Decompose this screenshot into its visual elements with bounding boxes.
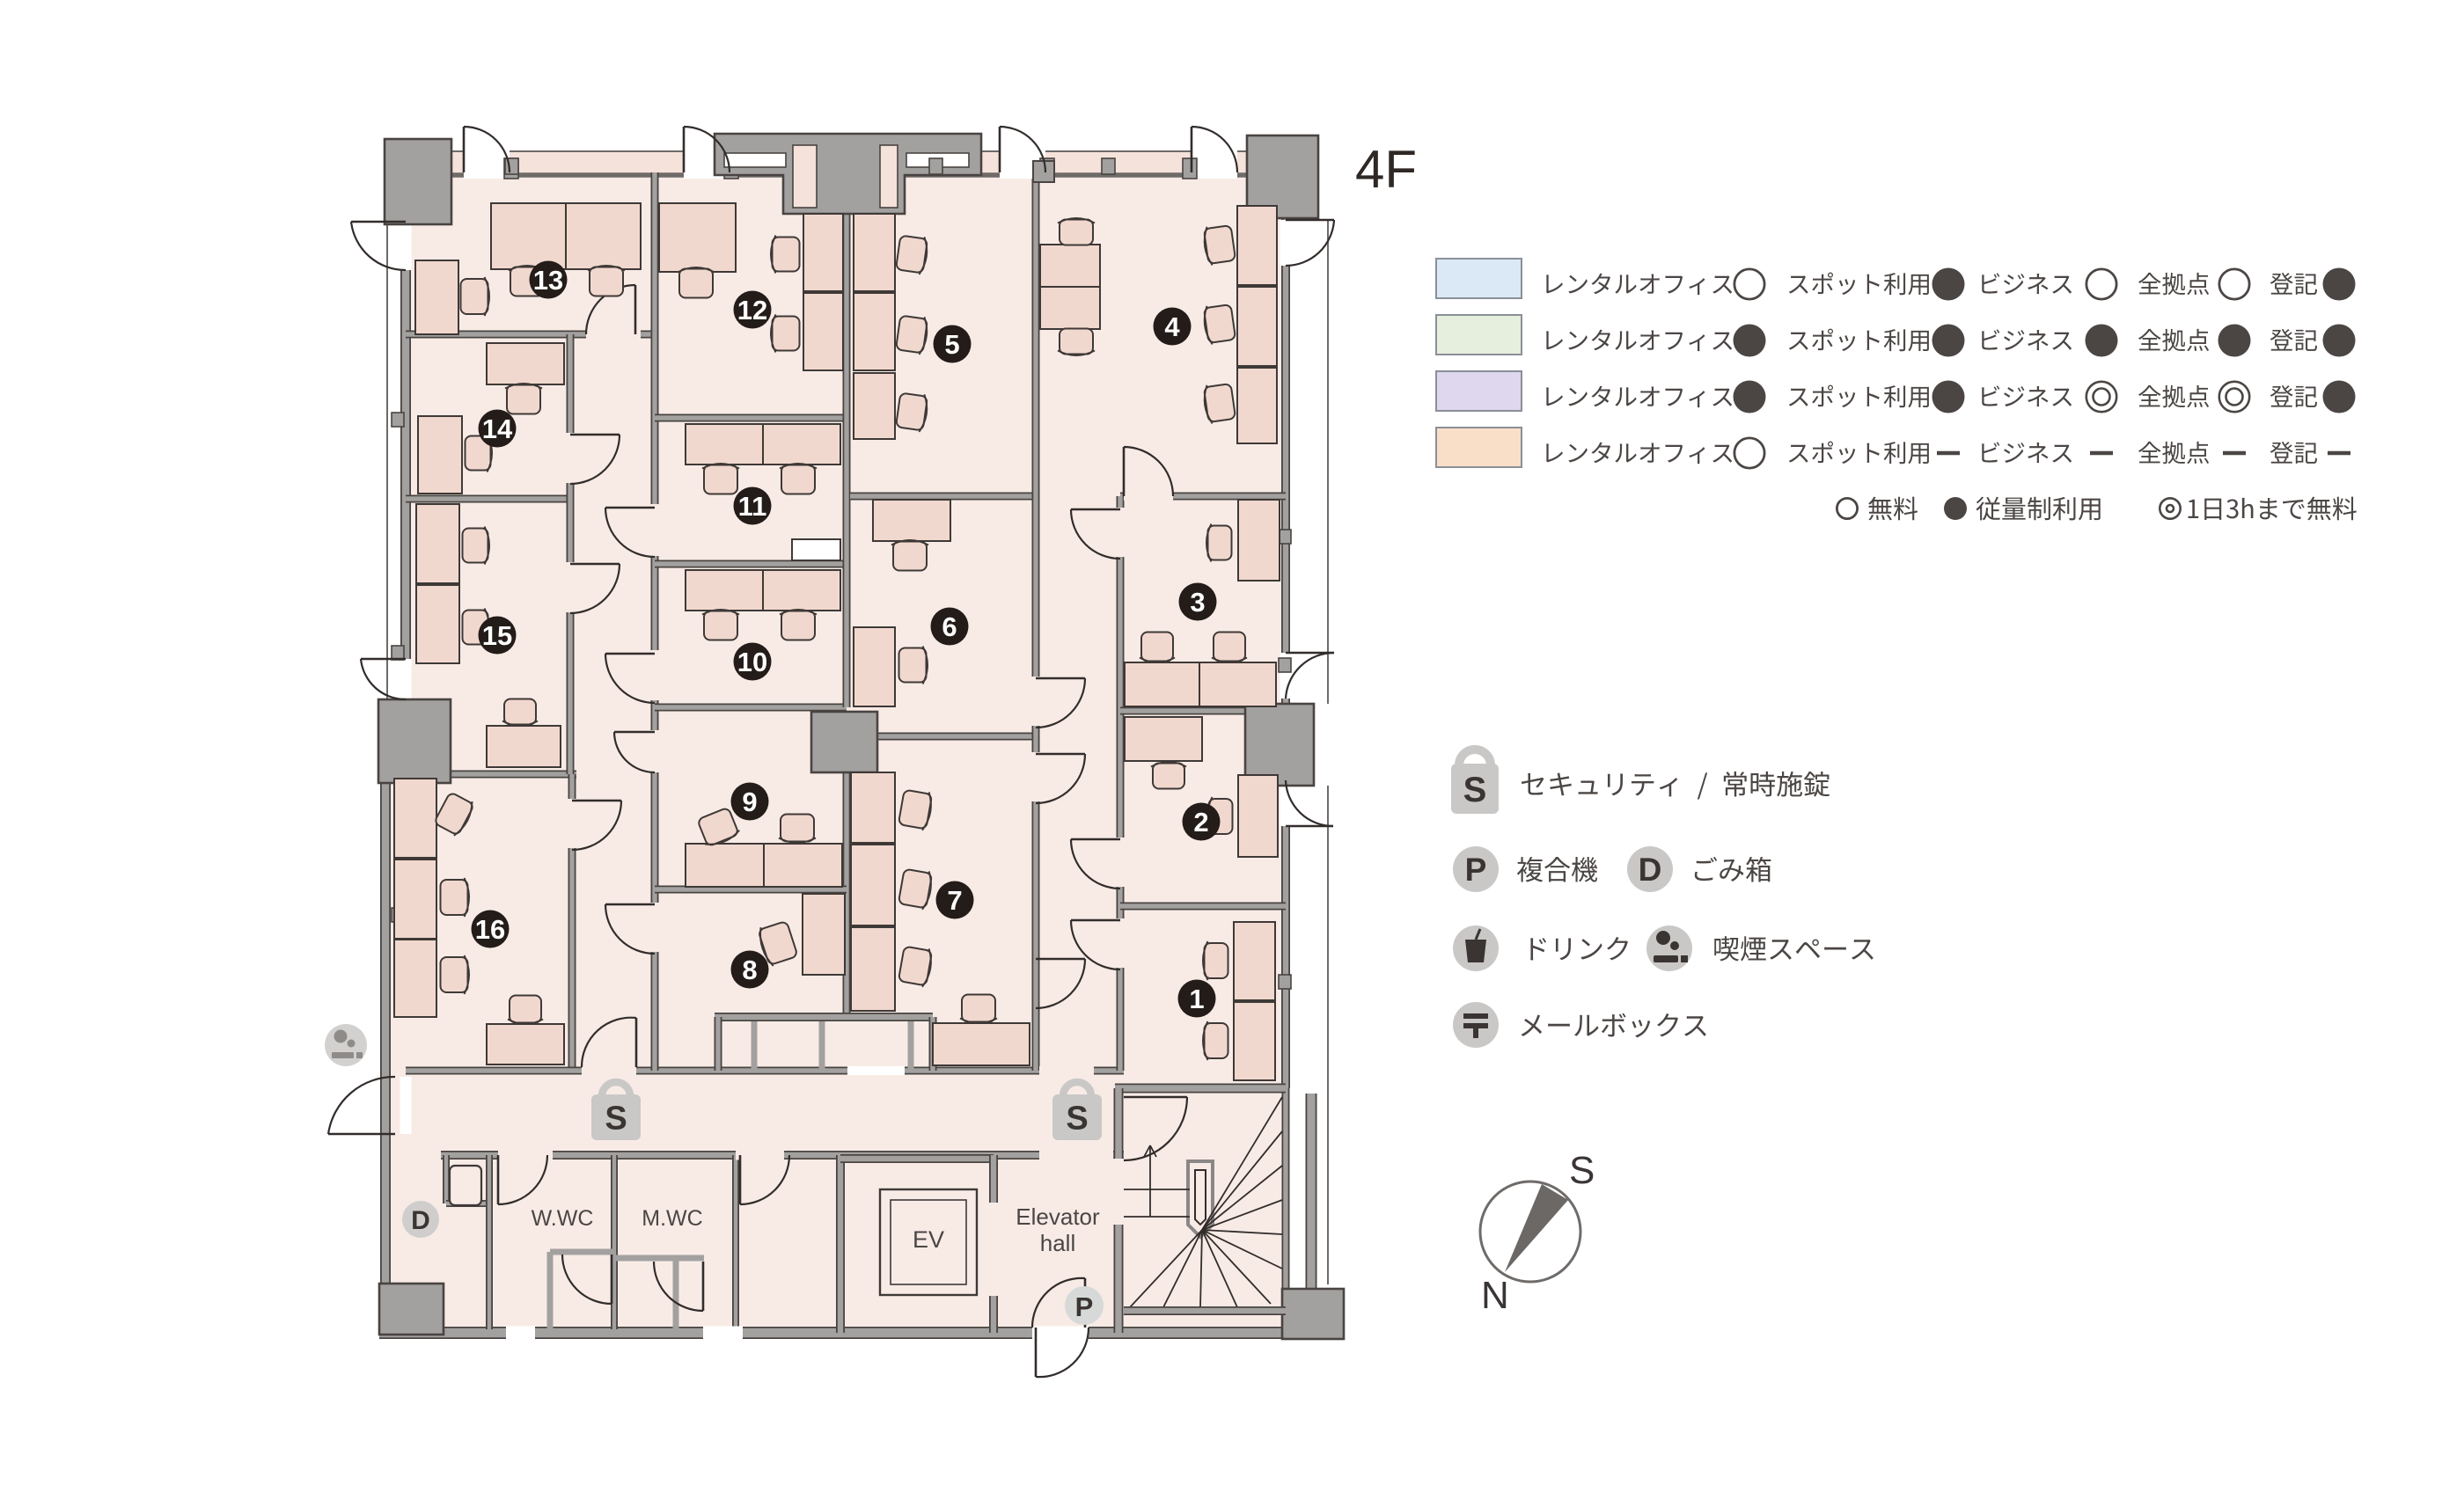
svg-text:D: D: [1639, 852, 1662, 888]
svg-text:8: 8: [742, 955, 757, 985]
svg-text:14: 14: [482, 413, 513, 444]
svg-text:6: 6: [942, 611, 957, 642]
svg-text:3: 3: [1190, 587, 1205, 618]
svg-text:7: 7: [947, 885, 962, 916]
svg-text:12: 12: [737, 295, 767, 326]
svg-text:1: 1: [1189, 984, 1204, 1014]
svg-text:4F: 4F: [1355, 140, 1417, 199]
svg-text:16: 16: [475, 914, 505, 945]
svg-text:4: 4: [1164, 311, 1180, 342]
svg-text:M.WC: M.WC: [642, 1206, 702, 1231]
svg-text:11: 11: [738, 491, 767, 522]
svg-text:S: S: [1066, 1101, 1088, 1138]
svg-text:S: S: [1569, 1149, 1595, 1192]
svg-text:P: P: [1465, 852, 1487, 888]
svg-text:5: 5: [944, 329, 959, 360]
svg-text:2: 2: [1193, 807, 1208, 838]
svg-text:S: S: [605, 1101, 627, 1138]
svg-text:EV: EV: [913, 1226, 944, 1253]
svg-text:W.WC: W.WC: [532, 1206, 594, 1231]
svg-text:S: S: [1463, 771, 1487, 809]
svg-text:D: D: [411, 1206, 430, 1235]
svg-text:9: 9: [742, 786, 757, 817]
svg-text:hall: hall: [1040, 1230, 1075, 1256]
svg-text:13: 13: [533, 265, 563, 296]
svg-text:P: P: [1075, 1291, 1094, 1322]
svg-text:10: 10: [737, 647, 767, 677]
svg-text:Elevator: Elevator: [1016, 1203, 1100, 1230]
svg-text:N: N: [1481, 1274, 1509, 1317]
svg-text:15: 15: [482, 620, 512, 651]
